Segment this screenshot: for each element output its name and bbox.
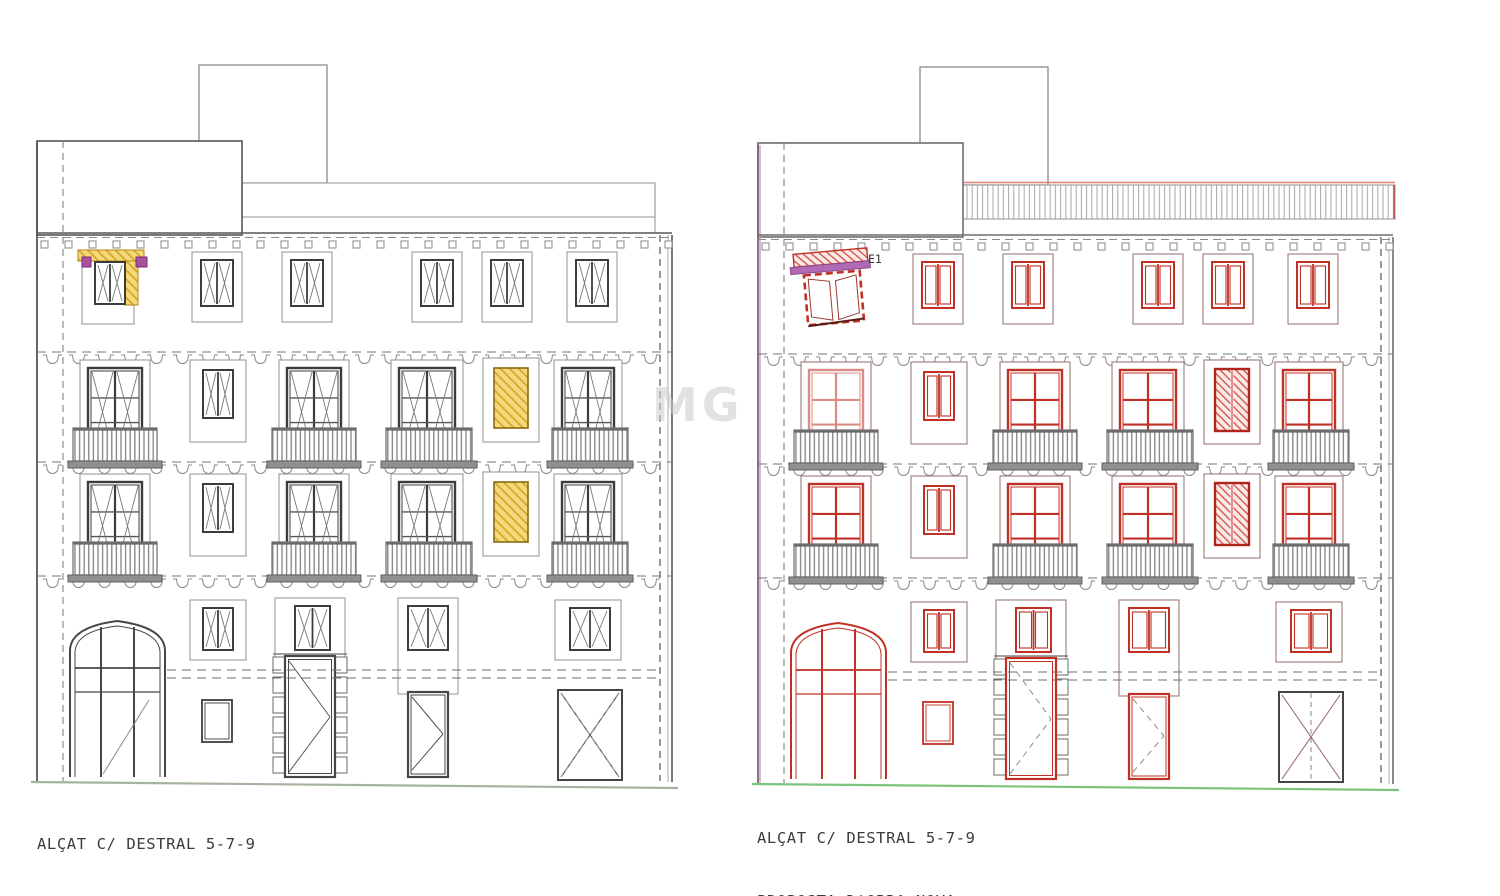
balcony — [1102, 430, 1198, 470]
balcony — [547, 542, 633, 582]
balcony — [267, 542, 361, 582]
watermark: MG — [652, 378, 744, 432]
entry-door — [408, 692, 448, 777]
wide-garage-door — [558, 690, 622, 780]
facade-drawing-new-work: E1 — [750, 52, 1410, 812]
drawing-title-line2: PROPOSTA D'OBRA NOVA — [757, 891, 976, 896]
balcony — [988, 544, 1082, 584]
wide-garage-door — [1279, 692, 1343, 782]
drawing-title-line1: ALÇAT C/ DESTRAL 5-7-9 — [757, 828, 976, 849]
balcony — [381, 428, 477, 468]
arched-shop-door — [791, 623, 886, 779]
drawing-title-line1: ALÇAT C/ DESTRAL 5-7-9 — [37, 834, 256, 855]
e1-dormer-window — [789, 248, 875, 328]
balcony — [381, 542, 477, 582]
svg-text:E1: E1 — [868, 252, 882, 266]
balcony — [267, 428, 361, 468]
balcony — [68, 542, 162, 582]
balcony — [789, 544, 883, 584]
balcony — [68, 428, 162, 468]
balcony — [547, 428, 633, 468]
balcony — [1268, 430, 1354, 470]
balcony — [789, 430, 883, 470]
quoined-entry-door — [273, 654, 347, 777]
drawing-canvas: ALÇAT C/ DESTRAL 5-7-9 PROPOSTA D'ENDERR… — [0, 0, 1500, 896]
facade-drawing-demolition — [29, 50, 689, 810]
balcony — [1268, 544, 1354, 584]
drawing-caption-demolition: ALÇAT C/ DESTRAL 5-7-9 PROPOSTA D'ENDERR… — [37, 792, 256, 896]
balcony — [1102, 544, 1198, 584]
balcony — [988, 430, 1082, 470]
drawing-caption-new-work: ALÇAT C/ DESTRAL 5-7-9 PROPOSTA D'OBRA N… — [757, 786, 976, 896]
arched-shop-door — [70, 621, 165, 777]
entry-door — [1129, 694, 1169, 779]
quoined-entry-door — [994, 656, 1068, 779]
